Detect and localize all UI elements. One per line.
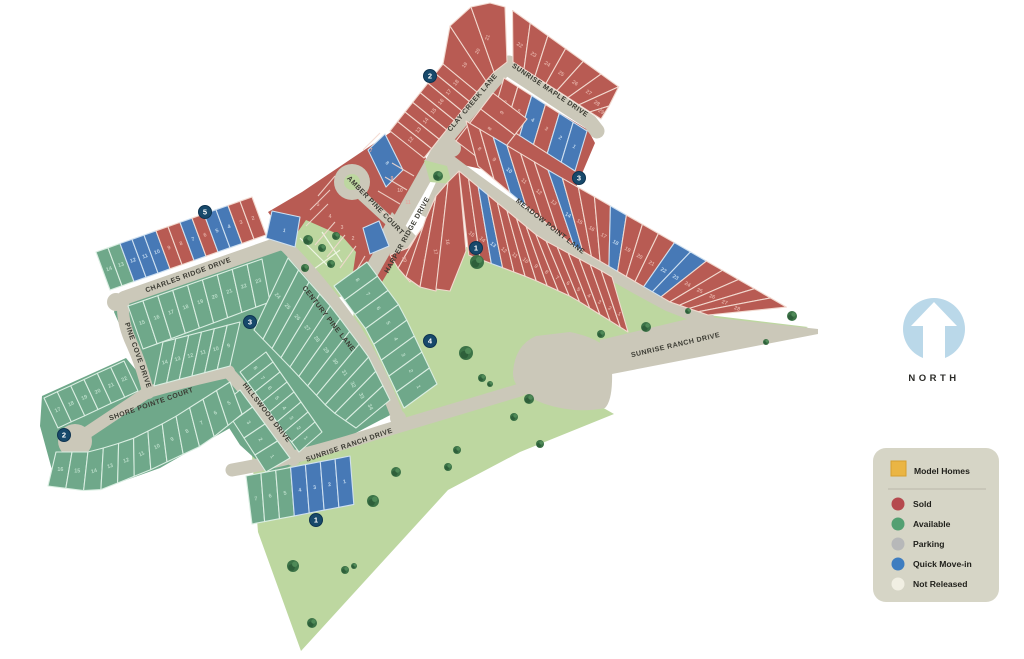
svg-text:Model Homes: Model Homes <box>914 466 970 476</box>
svg-text:2: 2 <box>428 72 432 81</box>
svg-text:Not Released: Not Released <box>913 579 967 589</box>
svg-text:9: 9 <box>391 176 394 182</box>
svg-text:3: 3 <box>577 174 581 183</box>
svg-text:16: 16 <box>57 467 63 473</box>
svg-text:1: 1 <box>474 244 478 253</box>
svg-text:3: 3 <box>248 318 252 327</box>
svg-text:11: 11 <box>405 200 411 206</box>
svg-text:NORTH: NORTH <box>908 373 959 384</box>
svg-text:16: 16 <box>444 239 451 245</box>
svg-text:7: 7 <box>370 148 373 154</box>
svg-text:Quick Move-in: Quick Move-in <box>913 559 972 569</box>
svg-text:Available: Available <box>913 519 951 529</box>
svg-text:3: 3 <box>341 225 344 231</box>
svg-text:10: 10 <box>397 188 403 194</box>
svg-text:2: 2 <box>62 431 66 440</box>
svg-text:5: 5 <box>203 208 207 217</box>
svg-text:4: 4 <box>329 214 332 220</box>
svg-text:2: 2 <box>352 236 355 242</box>
svg-text:15: 15 <box>74 468 80 474</box>
svg-text:5: 5 <box>317 202 320 208</box>
svg-text:Parking: Parking <box>913 539 945 549</box>
svg-text:17: 17 <box>432 249 439 256</box>
svg-text:1: 1 <box>314 516 318 525</box>
svg-text:Sold: Sold <box>913 499 932 509</box>
